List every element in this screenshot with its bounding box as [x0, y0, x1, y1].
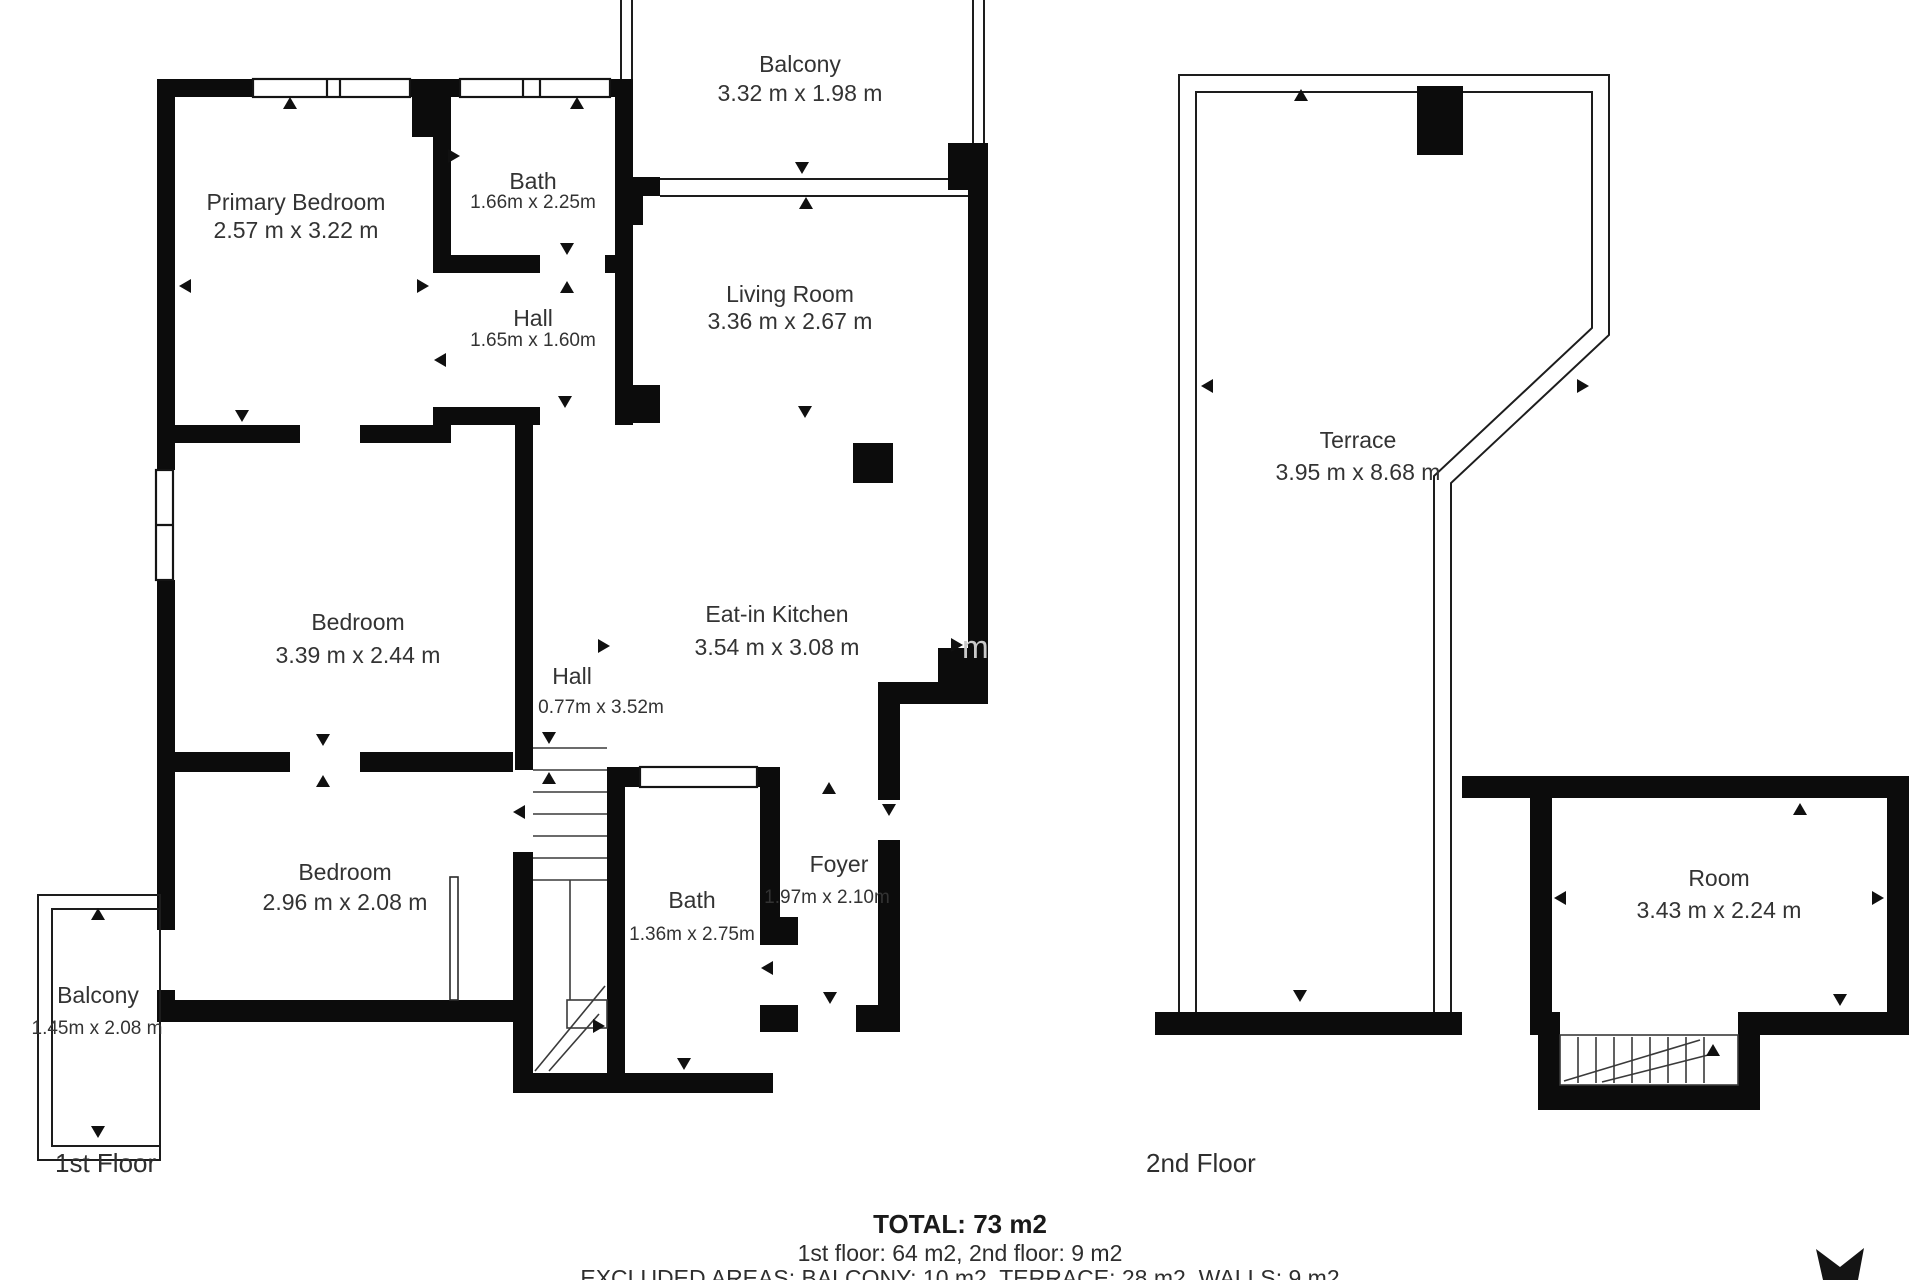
arrow-right-icon — [417, 279, 429, 293]
wall — [513, 1073, 773, 1093]
arrow-up-icon — [799, 197, 813, 209]
door-leaf — [450, 877, 458, 1000]
room-dims: 1.66m x 2.25m — [470, 192, 596, 213]
arrow-right-icon — [448, 149, 460, 163]
room-label: Balcony — [57, 982, 139, 1008]
wall — [360, 425, 451, 443]
room-dims: 1.97m x 2.10m — [764, 887, 890, 908]
first-floor-plan: Primary Bedroom 2.57 m x 3.22 m Bath 1.6… — [32, 0, 989, 1178]
wall — [968, 150, 988, 704]
wall — [515, 425, 533, 770]
wall — [433, 97, 451, 273]
arrow-right-icon — [1577, 379, 1589, 393]
room-dims: 1.45m x 2.08 m — [32, 1018, 163, 1039]
second-floor-title: 2nd Floor — [1146, 1148, 1256, 1178]
room-label: Bath — [509, 168, 556, 194]
arrow-left-icon — [761, 961, 773, 975]
room-label: Bedroom — [311, 609, 404, 635]
arrow-left-icon — [434, 353, 446, 367]
wall — [615, 79, 633, 425]
room-label: Primary Bedroom — [207, 189, 386, 215]
wall-pillar — [853, 443, 893, 483]
wall — [451, 255, 540, 273]
wall — [615, 385, 660, 423]
wall — [1462, 776, 1909, 798]
room-label: Living Room — [726, 281, 854, 307]
room-dims: 1.65m x 1.60m — [470, 330, 596, 351]
arrow-down-icon — [316, 734, 330, 746]
arrow-down-icon — [1833, 994, 1847, 1006]
arrow-up-icon — [316, 775, 330, 787]
room-label: Room — [1688, 865, 1749, 891]
arrow-up-icon — [1706, 1044, 1720, 1056]
room-label: Foyer — [810, 851, 869, 877]
arrow-down-icon — [560, 243, 574, 255]
wall — [157, 79, 175, 445]
arrow-down-icon — [542, 732, 556, 744]
window — [253, 79, 410, 97]
arrow-down-icon — [882, 804, 896, 816]
room-dims: 0.77m x 3.52m — [538, 697, 664, 718]
wall — [157, 425, 300, 443]
room-dims: 2.57 m x 3.22 m — [214, 217, 379, 243]
arrow-up-icon — [822, 782, 836, 794]
wall — [157, 445, 175, 470]
wall — [948, 143, 988, 190]
stair-shaft — [1560, 1035, 1738, 1085]
arrow-down-icon — [235, 410, 249, 422]
wall — [632, 177, 660, 196]
footer-summary: TOTAL: 73 m2 1st floor: 64 m2, 2nd floor… — [580, 1209, 1339, 1280]
floor-plan-page: Primary Bedroom 2.57 m x 3.22 m Bath 1.6… — [0, 0, 1920, 1280]
second-floor-plan: Terrace 3.95 m x 8.68 m Room 3.43 m x 2.… — [1146, 75, 1909, 1178]
wall — [1155, 1012, 1462, 1035]
floor-plan-drawing: Primary Bedroom 2.57 m x 3.22 m Bath 1.6… — [0, 0, 1920, 1280]
arrow-down-icon — [91, 1126, 105, 1138]
room-label: Bath — [668, 887, 715, 913]
arrow-down-icon — [795, 162, 809, 174]
wall — [1538, 1085, 1760, 1110]
wall — [878, 704, 900, 800]
room-label: Bedroom — [298, 859, 391, 885]
room-dims: 2.96 m x 2.08 m — [263, 889, 428, 915]
room-dims: 1.36m x 2.75m — [629, 924, 755, 945]
room-label: Hall — [513, 305, 553, 331]
arrow-up-icon — [1294, 89, 1308, 101]
room-label: Terrace — [1320, 427, 1397, 453]
stair-diagonal — [1602, 1053, 1716, 1082]
room-label: Eat-in Kitchen — [705, 601, 848, 627]
arrow-left-icon — [1554, 891, 1566, 905]
arrow-left-icon — [1201, 379, 1213, 393]
room-dims: 3.54 m x 3.08 m — [695, 634, 860, 660]
wall — [1887, 798, 1909, 1035]
logo-mark — [1816, 1248, 1864, 1280]
arrow-right-icon — [1872, 891, 1884, 905]
arrow-up-icon — [283, 97, 297, 109]
wall — [433, 407, 540, 425]
room-label: Balcony — [759, 51, 841, 77]
wall — [760, 1005, 798, 1032]
first-floor-title: 1st Floor — [55, 1148, 156, 1178]
wall — [760, 917, 798, 945]
wall — [878, 840, 900, 1005]
arrow-right-icon — [593, 1019, 605, 1033]
wall — [1530, 798, 1552, 1035]
arrow-up-icon — [570, 97, 584, 109]
arrow-left-icon — [513, 805, 525, 819]
room-dims: 3.39 m x 2.44 m — [276, 642, 441, 668]
arrow-down-icon — [677, 1058, 691, 1070]
wall — [878, 682, 988, 704]
wall — [157, 1000, 533, 1022]
room-dims: 3.43 m x 2.24 m — [1637, 897, 1802, 923]
watermark-text: m — [962, 629, 989, 665]
arrow-down-icon — [798, 406, 812, 418]
wall — [632, 196, 643, 225]
arrow-right-icon — [598, 639, 610, 653]
footer-total: TOTAL: 73 m2 — [873, 1209, 1047, 1239]
wall — [856, 1005, 900, 1032]
arrow-down-icon — [823, 992, 837, 1004]
arrow-up-icon — [1793, 803, 1807, 815]
arrow-up-icon — [560, 281, 574, 293]
second-floor-stairs — [1560, 1035, 1738, 1085]
footer-per-floor: 1st floor: 64 m2, 2nd floor: 9 m2 — [798, 1240, 1123, 1266]
wall — [607, 767, 625, 1093]
wall — [1530, 1012, 1560, 1035]
room-dims: 3.32 m x 1.98 m — [718, 80, 883, 106]
chimney-block — [1417, 86, 1463, 155]
wall — [157, 580, 175, 772]
wall — [1738, 1012, 1909, 1035]
wall — [513, 852, 533, 1093]
arrow-left-icon — [179, 279, 191, 293]
room-dims: 3.36 m x 2.67 m — [708, 308, 873, 334]
wall — [360, 752, 513, 772]
wall — [157, 752, 290, 772]
room-dims: 3.95 m x 8.68 m — [1276, 459, 1441, 485]
footer-excluded-areas: EXCLUDED AREAS: BALCONY: 10 m2, TERRACE:… — [580, 1265, 1339, 1280]
room-label: Hall — [552, 663, 592, 689]
arrow-down-icon — [1293, 990, 1307, 1002]
second-floor-walls — [1155, 86, 1909, 1110]
window — [640, 767, 757, 787]
window — [460, 79, 610, 97]
arrow-up-icon — [542, 772, 556, 784]
arrow-down-icon — [558, 396, 572, 408]
